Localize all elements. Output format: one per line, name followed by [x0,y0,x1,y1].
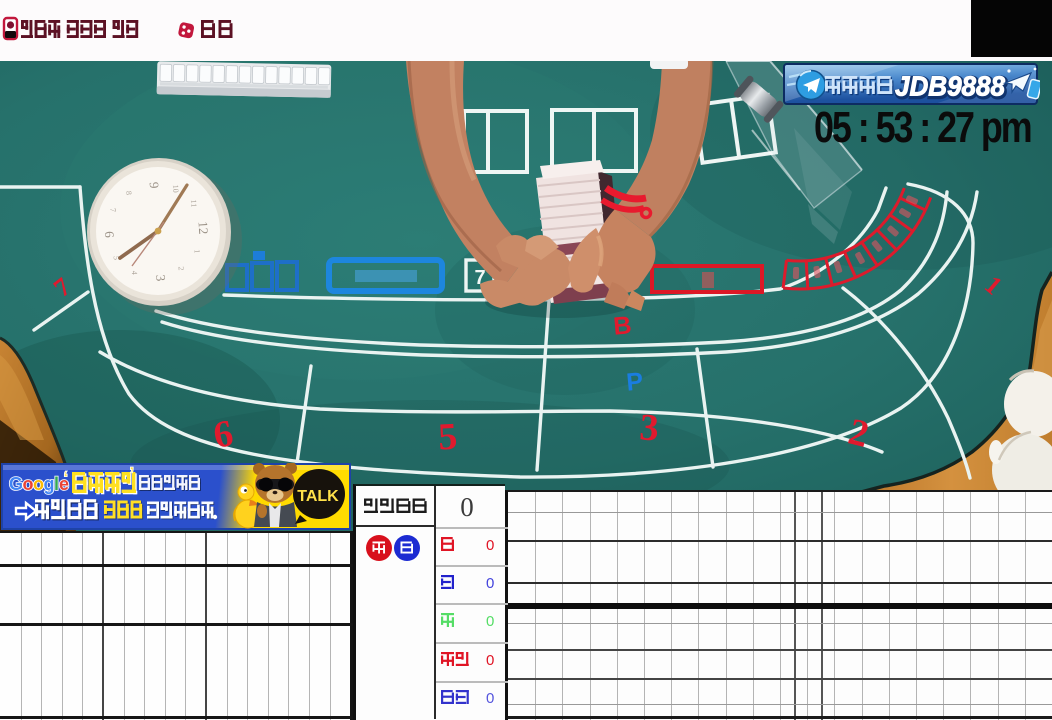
svg-text:9: 9 [147,181,162,189]
svg-text:12: 12 [195,221,211,235]
svg-text:g: g [44,474,55,494]
svg-text:11: 11 [189,199,199,207]
svg-text:0: 0 [486,613,494,630]
svg-text:10: 10 [171,184,181,193]
svg-text:P: P [625,367,644,396]
svg-text:o: o [23,474,34,494]
svg-text:0: 0 [486,575,494,592]
svg-text:8: 8 [124,191,133,196]
svg-text:‘: ‘ [63,468,69,490]
svg-text:1: 1 [192,249,201,254]
svg-text:0: 0 [486,690,494,707]
svg-text:JDB9888: JDB9888 [895,71,1005,102]
svg-text:G: G [9,474,23,494]
svg-text:0: 0 [486,537,494,554]
svg-text:2: 2 [177,266,186,271]
svg-text:5: 5 [437,416,458,459]
svg-text:0: 0 [486,652,494,669]
svg-text:7: 7 [108,208,117,213]
svg-text:TALK: TALK [297,488,339,505]
svg-text:B: B [612,311,632,340]
svg-text:’: ’ [129,464,135,486]
svg-text:4: 4 [130,270,139,275]
svg-text:3: 3 [638,406,660,449]
svg-text:3: 3 [153,274,168,282]
svg-text:o: o [33,474,44,494]
svg-text:0: 0 [460,492,474,522]
